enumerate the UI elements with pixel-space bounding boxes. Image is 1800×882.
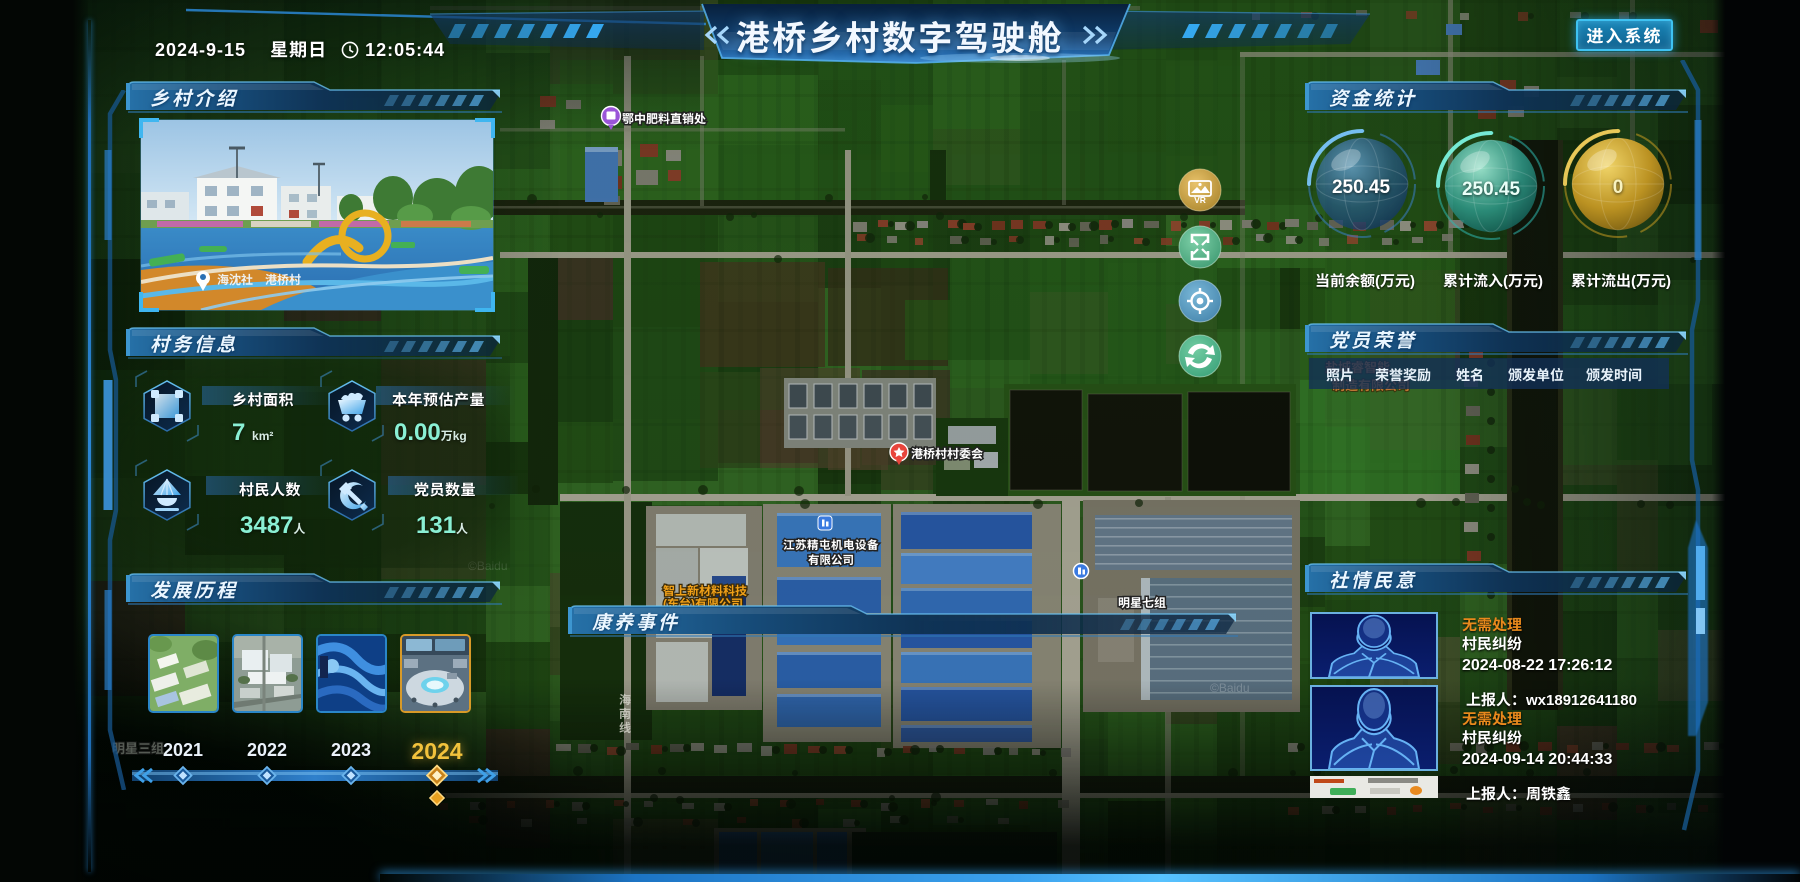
svg-text:江苏精屯机电设备: 江苏精屯机电设备 xyxy=(783,537,879,553)
svg-text:VR: VR xyxy=(1194,194,1206,206)
svg-text:©Baidu: ©Baidu xyxy=(1210,679,1250,696)
svg-text:有限公司: 有限公司 xyxy=(808,552,854,568)
svg-text:港桥村村委会: 港桥村村委会 xyxy=(911,445,983,462)
svg-text:海沈社 港桥村: 海沈社 港桥村 xyxy=(217,271,301,288)
svg-text:线: 线 xyxy=(619,719,631,736)
svg-text:鄂中肥料直销处: 鄂中肥料直销处 xyxy=(622,110,706,127)
